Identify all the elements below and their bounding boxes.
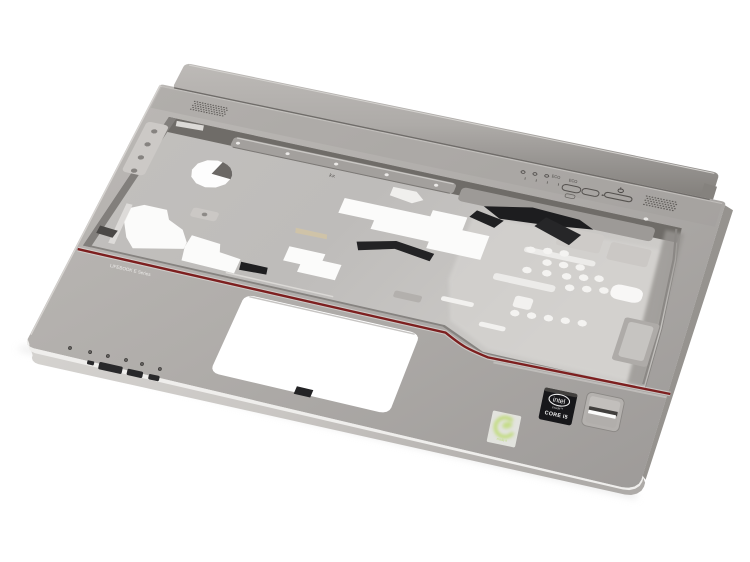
svg-text:kк: kк [328,173,335,180]
